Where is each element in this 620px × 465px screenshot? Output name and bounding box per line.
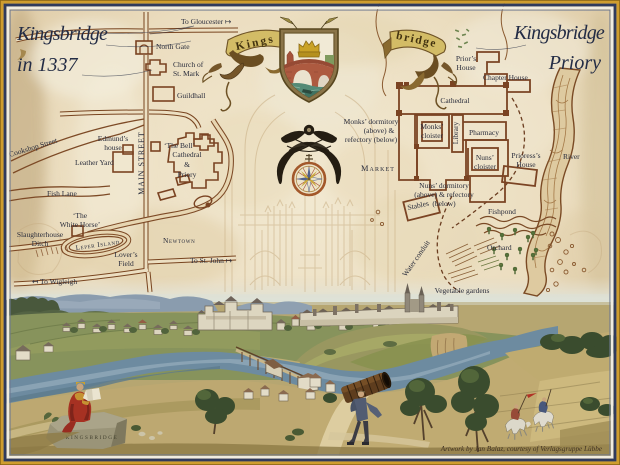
svg-text:Orchard: Orchard [487,243,512,252]
svg-text:(above) & refectory: (above) & refectory [414,190,474,199]
svg-text:cloister: cloister [474,162,497,171]
svg-text:House: House [456,63,476,72]
svg-text:Fish Lane: Fish Lane [47,189,77,198]
svg-text:Slaughterhouse: Slaughterhouse [17,230,64,239]
svg-text:Cathedral: Cathedral [172,150,201,159]
svg-text:&: & [184,160,190,169]
svg-text:Market: Market [361,164,395,173]
svg-text:Lover’s: Lover’s [114,250,137,259]
svg-text:‘The Bell’: ‘The Bell’ [164,141,195,150]
svg-text:Monks’ dormitory: Monks’ dormitory [344,117,399,126]
svg-text:(below): (below) [432,199,456,208]
svg-text:Edmund’s: Edmund’s [98,134,128,143]
svg-text:North Gate: North Gate [156,42,190,51]
svg-text:Artwork by Jan Balaz, courtesy: Artwork by Jan Balaz, courtesy of Verlag… [440,445,603,453]
svg-text:in 1337: in 1337 [17,54,79,76]
svg-text:Pharmacy: Pharmacy [469,128,499,137]
svg-text:↤ To Wigleigh: ↤ To Wigleigh [32,277,77,286]
svg-text:cloister: cloister [421,131,444,140]
svg-text:Kingsbridge: Kingsbridge [16,23,108,45]
svg-text:Vegetable gardens: Vegetable gardens [435,286,490,295]
svg-text:Cathedral: Cathedral [440,96,469,105]
svg-text:Church of: Church of [173,60,204,69]
svg-text:Guildhall: Guildhall [177,91,205,100]
svg-text:Library: Library [451,122,460,145]
svg-text:Fishpond: Fishpond [488,207,516,216]
svg-text:Leather Yard: Leather Yard [75,158,114,167]
svg-text:(above) &: (above) & [364,126,395,135]
svg-text:house: house [104,143,122,152]
svg-text:Newtown: Newtown [163,236,195,245]
svg-text:Nuns’: Nuns’ [476,153,494,162]
svg-text:Priory: Priory [548,52,601,74]
svg-text:To St. John ↦: To St. John ↦ [190,256,233,265]
svg-text:River: River [563,152,580,161]
svg-text:Ditch: Ditch [32,239,49,248]
svg-text:‘The: ‘The [73,211,88,220]
svg-text:House: House [516,160,536,169]
svg-text:Field: Field [118,259,134,268]
svg-text:St. Mark: St. Mark [173,69,200,78]
svg-text:MAIN STREET: MAIN STREET [137,131,146,195]
svg-text:Priory: Priory [178,170,197,179]
svg-text:Prioress’s: Prioress’s [511,151,540,160]
svg-text:Prior’s: Prior’s [456,54,476,63]
svg-text:Monks’: Monks’ [420,122,443,131]
svg-text:Kingsbridge: Kingsbridge [513,22,605,44]
svg-text:To Gloucester ↦: To Gloucester ↦ [181,17,232,26]
svg-text:Nuns’ dormitory: Nuns’ dormitory [419,181,469,190]
svg-text:refectory (below): refectory (below) [345,135,398,144]
svg-text:Chapter House: Chapter House [483,73,528,82]
svg-text:White Horse’: White Horse’ [60,220,101,229]
svg-text:KINGSBRIDGE: KINGSBRIDGE [66,435,119,441]
